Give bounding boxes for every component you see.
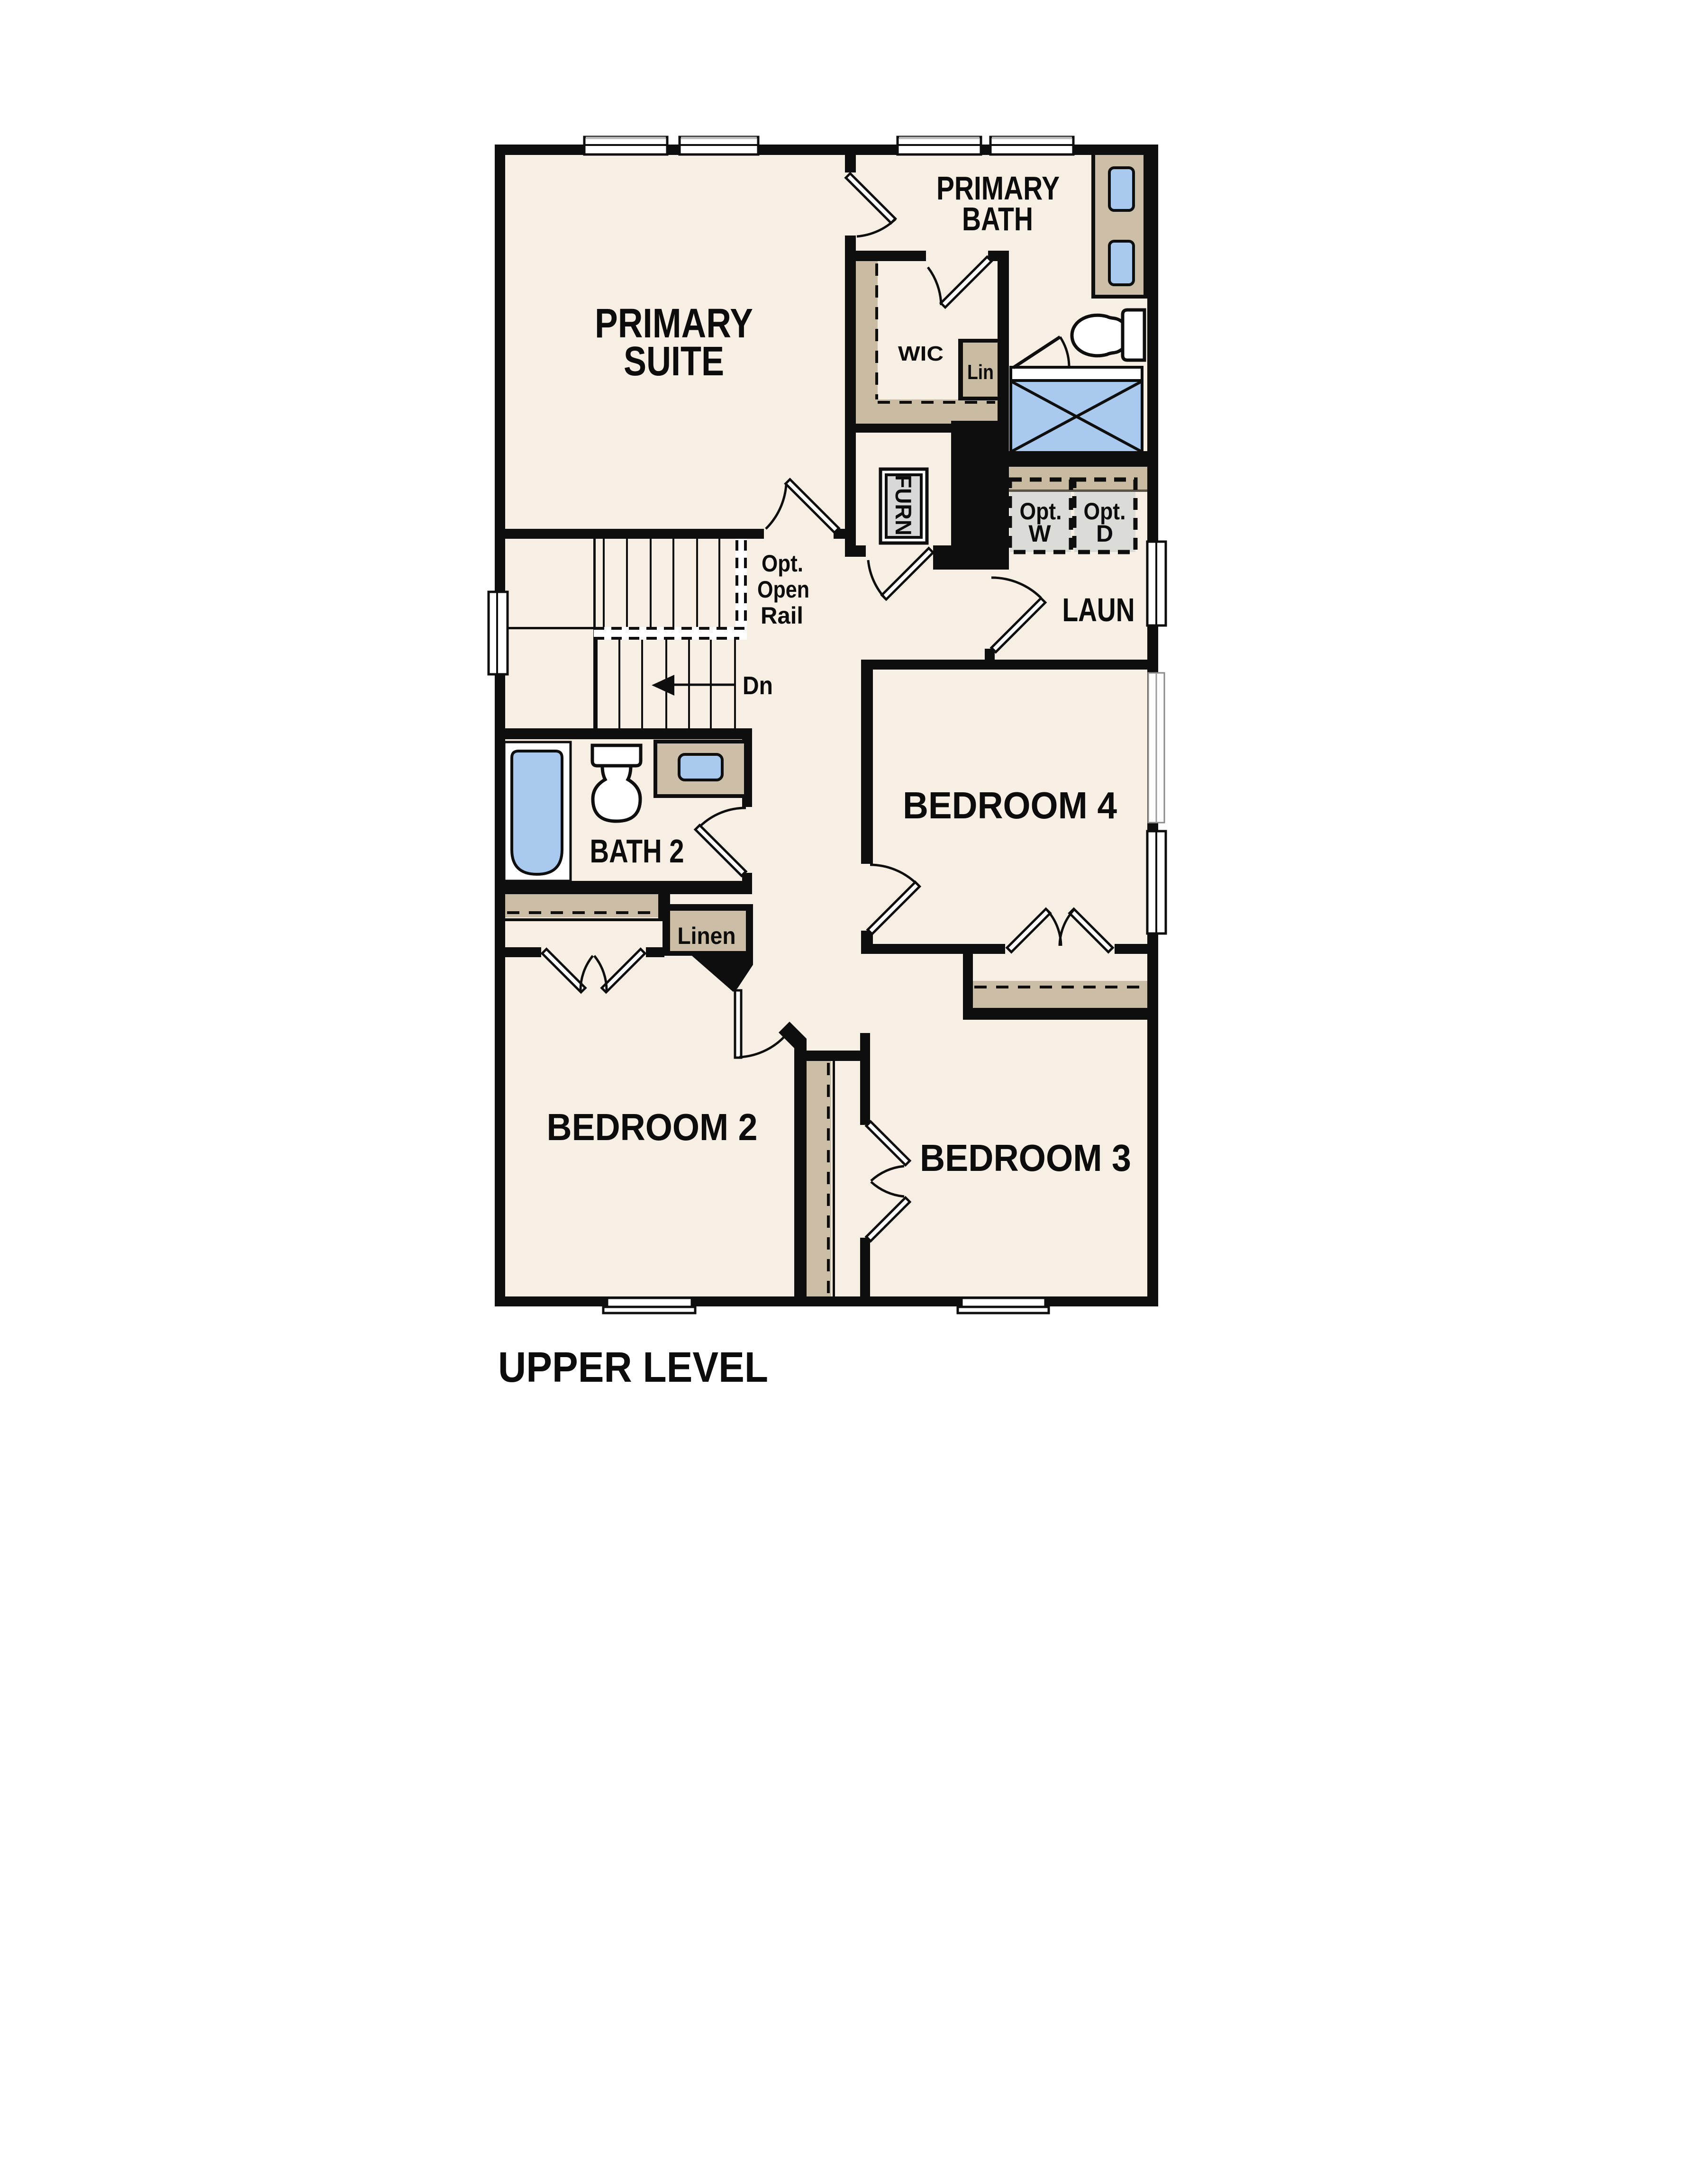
svg-text:BEDROOM 3: BEDROOM 3 [920,1137,1131,1179]
svg-text:WIC: WIC [898,342,944,365]
svg-text:BATH 2: BATH 2 [590,833,684,870]
svg-text:BEDROOM 4: BEDROOM 4 [903,784,1117,826]
svg-text:UPPER LEVEL: UPPER LEVEL [498,1344,768,1391]
svg-text:Lin: Lin [967,361,994,384]
svg-text:SUITE: SUITE [624,338,724,384]
svg-text:BEDROOM 2: BEDROOM 2 [547,1106,758,1148]
svg-text:W: W [1028,520,1051,547]
svg-text:LAUN: LAUN [1062,591,1135,628]
svg-text:Linen: Linen [678,923,736,949]
svg-text:D: D [1096,520,1113,547]
svg-text:Dn: Dn [743,671,773,700]
svg-text:Opt.: Opt. [762,550,803,577]
svg-text:Rail: Rail [761,602,803,629]
svg-text:FURN: FURN [891,475,916,535]
svg-text:Open: Open [757,576,809,603]
svg-text:BATH: BATH [962,200,1033,237]
